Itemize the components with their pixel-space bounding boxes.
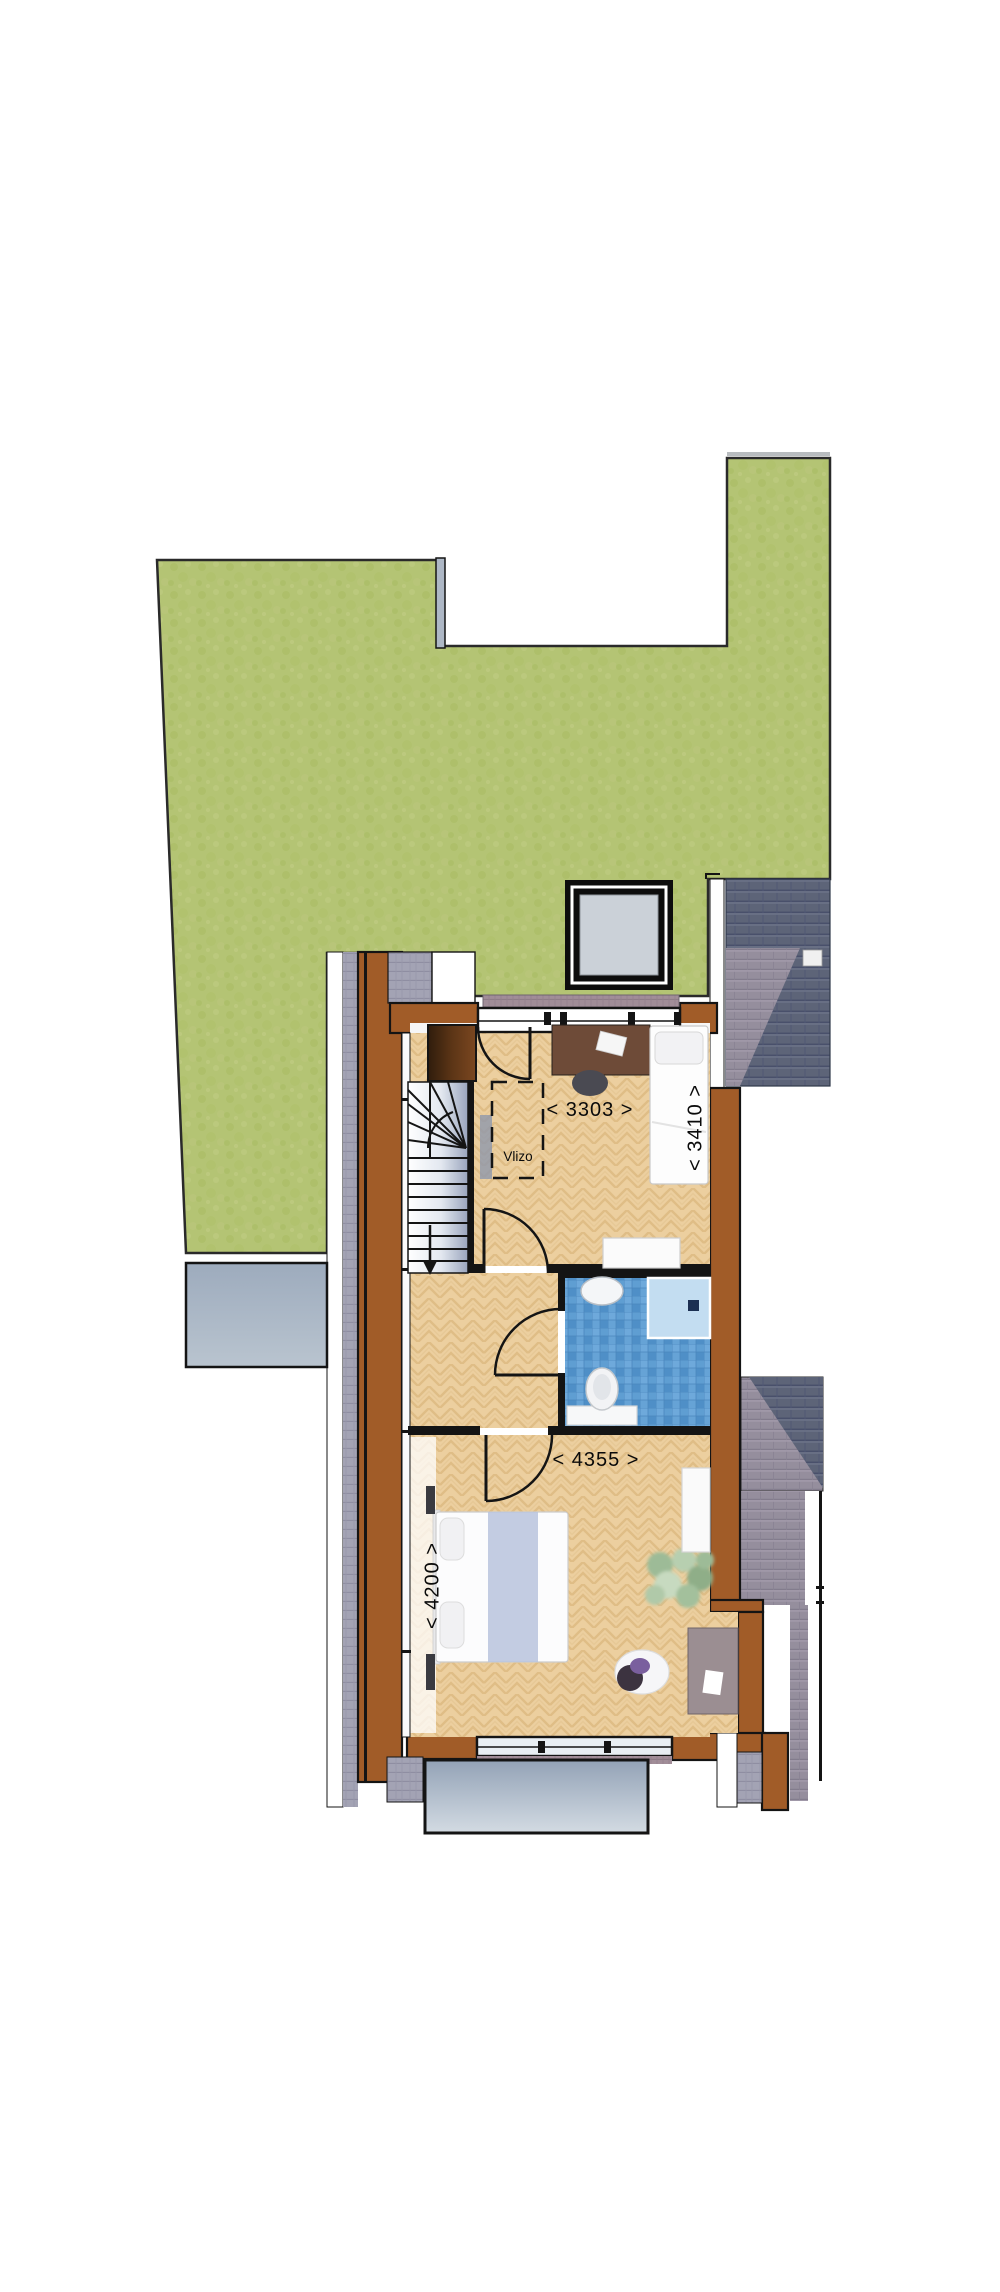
garden-top-edge xyxy=(727,452,830,456)
floor-plan-drawing xyxy=(0,0,1000,2292)
sink xyxy=(581,1277,623,1305)
dresser-bedroom-top xyxy=(603,1238,680,1268)
dimension-label-3303: < 3303 > xyxy=(518,1099,662,1122)
closet xyxy=(428,1025,476,1081)
floor-plan-canvas: < 3303 > < 3410 > Vlizo < 4355 > < 4200 … xyxy=(0,0,1000,2292)
roof-north-east xyxy=(726,879,830,1086)
dimension-label-3410: < 3410 > xyxy=(685,1056,708,1200)
vlizo-label: Vlizo xyxy=(486,1149,550,1164)
balcony-south xyxy=(425,1760,648,1833)
dimension-label-4355: < 4355 > xyxy=(524,1449,668,1472)
gutter-strip-west xyxy=(327,952,358,1807)
roof-vent xyxy=(803,950,822,966)
garden-notch-edge xyxy=(436,558,445,648)
landing-floor xyxy=(408,1273,558,1428)
balcony-west xyxy=(186,1263,327,1367)
chair-bedroom-top xyxy=(572,1070,608,1096)
bed-bedroom-bottom xyxy=(433,1510,568,1664)
skylight xyxy=(565,880,673,990)
chair-bedroom-bottom xyxy=(615,1650,669,1694)
shower xyxy=(648,1278,710,1338)
desk-bedroom-bottom xyxy=(688,1628,738,1714)
side-table xyxy=(682,1468,710,1552)
dimension-label-4200: < 4200 > xyxy=(422,1514,445,1658)
staircase xyxy=(408,1082,468,1275)
